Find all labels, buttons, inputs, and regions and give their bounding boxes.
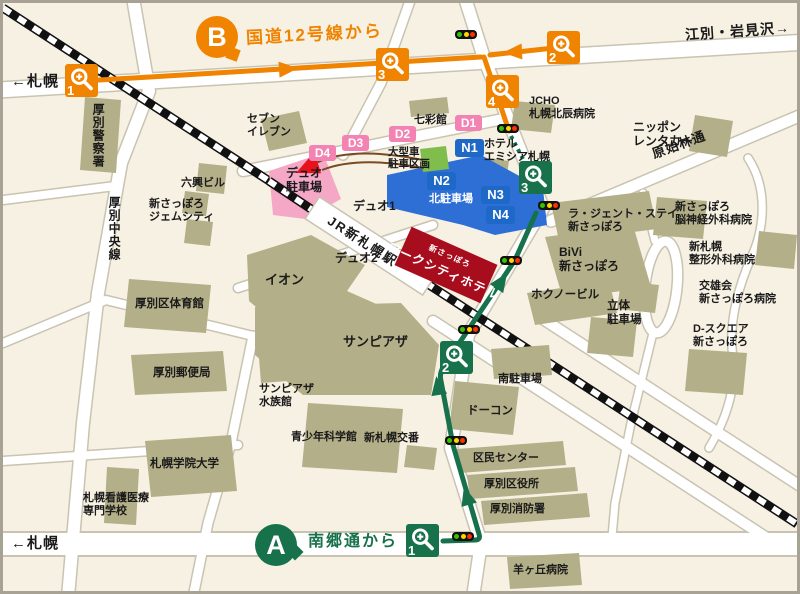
building-koban xyxy=(404,445,437,470)
label-duo-parking: デュオ 駐車場 xyxy=(286,166,322,194)
zoom-marker-b3[interactable]: 3 xyxy=(376,48,409,81)
zoom-marker-b1[interactable]: 1 xyxy=(65,64,98,97)
label-north-parking: 北駐車場 xyxy=(429,193,473,206)
label-kango-school: 札幌看護医療 専門学校 xyxy=(83,492,149,518)
label-duo1: デュオ1 xyxy=(353,199,396,213)
label-shobosho: 厚別消防署 xyxy=(490,503,545,516)
traffic-light-icon xyxy=(500,256,522,265)
label-yubinkyoku: 厚別郵便局 xyxy=(153,367,211,381)
label-rittai-parking: 立体 駐車場 xyxy=(607,300,642,327)
direction-sapporo-top: ←札幌 xyxy=(11,73,59,91)
label-seven-eleven: セブン イレブン xyxy=(247,113,291,139)
label-kumin-center: 区民センター xyxy=(473,452,539,465)
badge-d2: D2 xyxy=(389,126,416,142)
label-kuyakusho: 厚別区役所 xyxy=(484,478,539,491)
label-aeon: イオン xyxy=(265,272,304,287)
badge-n2: N2 xyxy=(427,172,456,190)
zoom-marker-b4[interactable]: 4 xyxy=(486,75,519,108)
traffic-light-icon xyxy=(497,124,519,133)
label-gemcity: 新さっぽろ ジェムシティ xyxy=(149,198,214,224)
building-seikei xyxy=(755,231,797,269)
route-a-label: 南郷通から xyxy=(308,533,398,552)
label-shichisaikan: 七彩館 xyxy=(414,114,447,127)
traffic-light-icon xyxy=(455,30,477,39)
label-duo2: デュオ2 xyxy=(335,251,378,265)
badge-d1: D1 xyxy=(455,115,482,131)
zoom-marker-a1[interactable]: 1 xyxy=(406,524,439,557)
traffic-light-icon xyxy=(458,325,480,334)
label-gakuin-univ: 札幌学院大学 xyxy=(150,458,219,472)
label-road-atsubetsu-chuo: 厚別中央線 xyxy=(107,196,121,261)
label-jcho-hospital: JCHO 札幌北辰病院 xyxy=(529,95,595,121)
badge-d4: D4 xyxy=(309,145,336,161)
direction-sapporo-bottom: ←札幌 xyxy=(11,535,59,553)
zoom-marker-a3[interactable]: 3 xyxy=(519,161,552,194)
building-aquarium xyxy=(257,329,315,383)
label-hitsujigaoka: 羊ヶ丘病院 xyxy=(513,564,568,577)
label-taiikukan: 厚別区体育館 xyxy=(135,298,204,312)
badge-n1: N1 xyxy=(455,139,484,157)
label-d-square: D-スクエア 新さっぽろ xyxy=(693,323,749,349)
label-seikei-hospital: 新札幌 整形外科病院 xyxy=(689,241,755,267)
label-aquarium: サンピアザ 水族館 xyxy=(259,383,314,409)
label-large-vehicle-parking: 大型車 駐車区画 xyxy=(388,146,430,171)
label-minami-parking: 南駐車場 xyxy=(498,373,542,386)
zoom-marker-b2[interactable]: 2 xyxy=(547,31,580,64)
traffic-light-icon xyxy=(452,532,474,541)
buildings-layer xyxy=(80,97,797,589)
label-kagakukan: 青少年科学館 xyxy=(291,431,357,444)
label-docon: ドーコン xyxy=(467,405,513,419)
traffic-light-icon xyxy=(445,436,467,445)
label-hokuno-building: ホクノービル xyxy=(531,289,599,303)
badge-n4: N4 xyxy=(486,206,515,224)
label-rokko-building: 六興ビル xyxy=(181,177,225,190)
zoom-marker-a2[interactable]: 2 xyxy=(440,341,473,374)
access-map: ←札幌 江別・岩見沢→ ←札幌 B 国道12号線から A 南郷通から 厚別警察署… xyxy=(0,0,800,594)
route-b-badge: B xyxy=(196,16,238,58)
label-lagent-stay: ラ・ジェント・ステイ 新さっぽろ xyxy=(568,208,678,234)
traffic-light-icon xyxy=(538,201,560,210)
route-a-badge: A xyxy=(255,524,297,566)
label-police: 厚別警察署 xyxy=(91,103,105,168)
building-dsquare xyxy=(685,349,747,395)
label-noushinkei-hospital: 新さっぽろ 脳神経外科病院 xyxy=(675,201,752,227)
badge-n3: N3 xyxy=(481,186,510,204)
label-sunpiazza: サンピアザ xyxy=(343,334,408,349)
label-koyukai-hospital: 交雄会 新さっぽろ病院 xyxy=(699,280,776,306)
badge-d3: D3 xyxy=(342,135,369,151)
label-koban: 新札幌交番 xyxy=(364,432,419,445)
label-bivi: BiVi 新さっぽろ xyxy=(559,245,619,273)
